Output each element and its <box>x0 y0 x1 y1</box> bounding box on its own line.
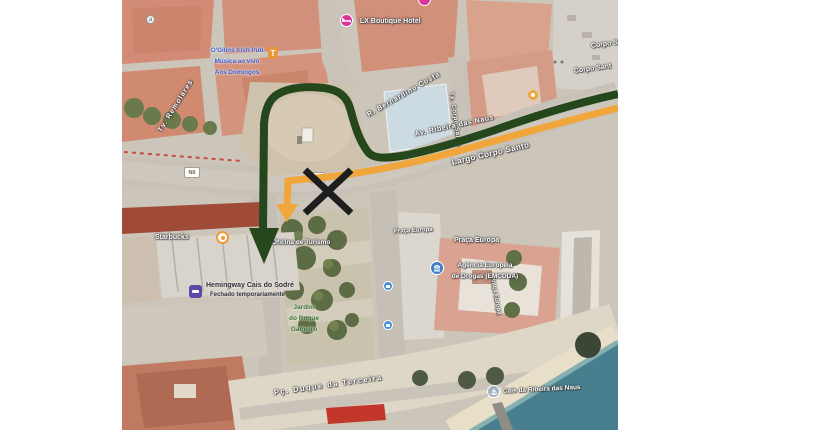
street-label-largo-corpo-santo: Largo Corpo Santo <box>451 140 530 167</box>
road-shield-n6-center: N6 <box>309 172 325 183</box>
poi-cais-da-ribeira-das-naus: Cais da Ribeira das Naus <box>503 384 581 395</box>
poi-hemingway-status: Fechado temporariamente <box>210 292 285 298</box>
ferry-marker-icon[interactable] <box>487 385 500 398</box>
purple-square-marker-icon[interactable] <box>189 285 202 298</box>
emcdda-line1: Agência Europeia <box>458 262 513 269</box>
street-label-r-bernardino-costa: R. Bernardino Costa <box>366 71 441 119</box>
street-label-corpo-santo-lower: Corpo Sant <box>574 63 612 75</box>
jardim-line2: do Roque <box>289 315 319 322</box>
a-badge: a <box>146 15 155 24</box>
poi-oficina-de-turismo: Oficina de Turismo <box>272 239 330 246</box>
street-label-corpo-santo-upper: Corpo S <box>591 39 618 50</box>
jardim-line1: Jardim <box>293 304 314 311</box>
starbucks-marker-icon[interactable] <box>216 231 229 244</box>
poi-emcdda: Agência Europeia de Drogas (EMCDDA) <box>444 259 526 281</box>
poi-dot-marker[interactable] <box>528 90 538 100</box>
transit-stop-icon-south[interactable] <box>383 320 393 330</box>
poi-jardim-roque-gameiro: Jardim do Roque Gameiro <box>278 301 330 334</box>
street-label-tv-corpo-santo: Tv. Corpo Santo <box>448 92 462 147</box>
transit-stop-icon-north[interactable] <box>383 281 393 291</box>
street-label-pc-duque-da-terceira: Pç. Duque da Terceira <box>273 373 383 397</box>
turismo-marker-dot[interactable] <box>264 242 269 247</box>
ogilins-sub2: Aos Domingos <box>215 69 259 76</box>
ogilins-sub1: Música ao vivo <box>215 58 260 65</box>
map-labels: Tv. Remolares R. Bernardino Costa Tv. Co… <box>122 0 618 430</box>
poi-lx-boutique-hotel: LX Boutique Hotel <box>360 18 421 25</box>
street-label-tv-remolares: Tv. Remolares <box>157 78 195 133</box>
poi-hemingway-name: Hemingway Cais do Sodré <box>206 282 294 289</box>
satellite-map: Tv. Remolares R. Bernardino Costa Tv. Co… <box>122 0 618 430</box>
hotel-marker-icon[interactable] <box>340 14 353 27</box>
street-label-praca-europa-small: Praça Europa <box>394 227 433 235</box>
emcdda-line2: de Drogas (EMCDDA) <box>452 273 518 280</box>
street-label-praca-europa-large: Praça Europa <box>454 237 499 244</box>
ogilins-name: O'Gilins Irish Pub <box>211 47 264 54</box>
a-badge-text: a <box>149 17 152 23</box>
poi-ogilins-irish-pub: O'Gilins Irish Pub Música ao vivo Aos Do… <box>206 44 268 77</box>
hotel-marker-icon-top[interactable] <box>418 0 431 6</box>
jardim-line3: Gameiro <box>291 326 317 333</box>
n6-center-text: N6 <box>313 175 320 181</box>
street-label-praca-europa-vertical: Praça Europa <box>489 276 502 315</box>
institution-marker-icon[interactable] <box>430 261 444 275</box>
pub-marker-icon[interactable]: T <box>268 47 278 59</box>
poi-starbucks: Starbucks <box>155 234 189 241</box>
n6-west-text: N6 <box>188 170 195 176</box>
road-shield-n6-west: N6 <box>184 167 200 178</box>
scanned-map-page: { "map_area": { "description": "Satellit… <box>0 0 825 430</box>
